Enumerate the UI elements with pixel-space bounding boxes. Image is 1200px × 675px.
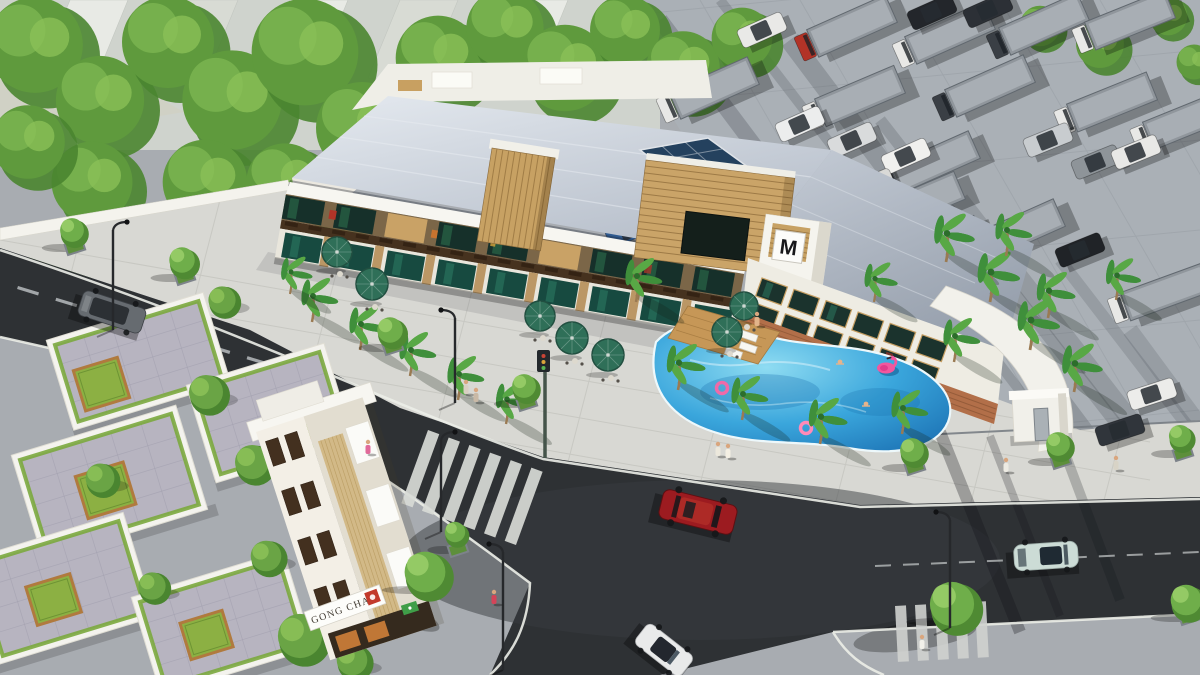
cafe-chair <box>735 355 738 358</box>
cafe-chair <box>601 378 604 381</box>
cafe-table <box>540 335 546 341</box>
cafe-chair <box>345 275 348 278</box>
cafe-chair <box>580 362 583 365</box>
cafe-table <box>744 324 750 330</box>
render-canvas: GONG CHA <box>0 0 1200 675</box>
cafe-table <box>608 375 614 381</box>
rooftop-wood-box <box>398 80 422 91</box>
cafe-chair <box>365 307 368 310</box>
aerial-architectural-render: GONG CHA <box>0 0 1200 675</box>
m-logo-text: M <box>778 235 799 260</box>
cafe-table <box>727 351 733 357</box>
cafe-chair <box>548 339 551 342</box>
cafe-chair <box>752 328 755 331</box>
cafe-table <box>572 358 578 364</box>
cafe-chair <box>616 379 619 382</box>
cafe-chair <box>720 354 723 357</box>
cafe-chair <box>565 361 568 364</box>
rooftop-skylight-box <box>432 72 472 88</box>
rooftop-skylight-box <box>540 68 582 84</box>
cafe-chair <box>380 308 383 311</box>
cafe-chair <box>330 274 333 277</box>
kiosk-door <box>1034 408 1050 441</box>
cafe-table <box>372 304 378 310</box>
cafe-chair <box>533 338 536 341</box>
cafe-table <box>337 271 343 277</box>
